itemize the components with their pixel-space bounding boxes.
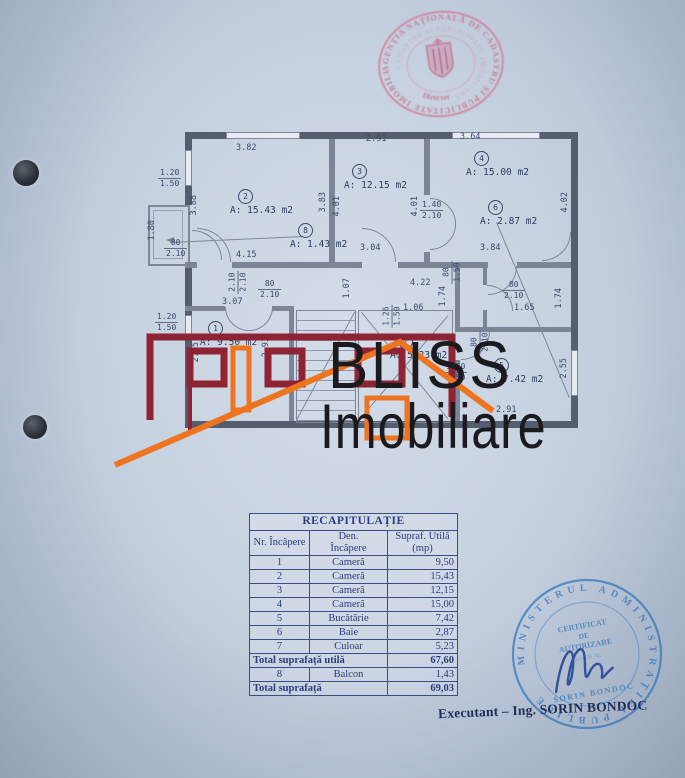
cell-den: Baie — [310, 626, 388, 640]
door-size-mark: 80 1.50 — [442, 260, 462, 283]
wall — [517, 262, 571, 268]
room-label-6: 6 A: 2.87 m2 — [480, 200, 537, 227]
dimension-label: 4.22 — [410, 278, 430, 288]
mark-width: 1.20 — [158, 168, 181, 179]
dimension-label: 4.01 — [410, 196, 420, 216]
total-utila-row: Total suprafață utilă 67,60 — [250, 654, 458, 668]
cell-nr: 7 — [250, 640, 310, 654]
dimension-label: 1.06 — [403, 303, 423, 313]
mark-height: 2.10 — [164, 249, 187, 259]
cell-mp: 1,43 — [388, 668, 458, 682]
mark-width: 1.40 — [420, 200, 443, 211]
wall — [424, 252, 430, 262]
room-label-3: 3 A: 12.15 m2 — [344, 164, 407, 191]
door-size-mark: 2.10 2.10 — [228, 270, 248, 293]
room-number: 4 — [474, 151, 489, 166]
cell-nr: 5 — [250, 612, 310, 626]
cell-den: Cameră — [310, 570, 388, 584]
table-row: 2 Cameră 15,43 — [250, 570, 458, 584]
dimension-label: 3.64 — [460, 132, 480, 142]
total-utila-label: Total suprafață utilă — [250, 654, 388, 668]
dimension-label: 3.82 — [236, 143, 256, 153]
dimension-label: 1.07 — [342, 278, 352, 298]
door-size-mark: 80 2.10 — [502, 280, 525, 300]
stamp-line-de: DE — [578, 630, 590, 641]
total-value: 69,03 — [388, 682, 458, 696]
door-size-mark: 80 2.10 — [164, 238, 187, 258]
mark-height: 1.50 — [452, 260, 462, 283]
cell-nr: 6 — [250, 626, 310, 640]
header-line: Supraf. Utilă — [391, 531, 454, 543]
window — [226, 132, 300, 139]
dimension-label: 3.84 — [480, 243, 500, 253]
leader-line — [170, 236, 303, 243]
cell-mp: 5,23 — [388, 640, 458, 654]
dimension-label: 4.01 — [332, 196, 342, 216]
room-area: A: 1.43 m2 — [290, 239, 347, 250]
wall — [483, 262, 487, 285]
room-area: A: 2.87 m2 — [480, 216, 537, 227]
wall — [424, 139, 430, 195]
wall — [232, 262, 362, 268]
coat-of-arms — [425, 37, 454, 79]
dimension-label: 1.74 — [554, 288, 564, 308]
dimension-label: 3.04 — [360, 243, 380, 253]
punch-hole — [23, 415, 47, 439]
room-label-8: 8 A: 1.43 m2 — [290, 223, 347, 250]
mark-height: 2.10 — [258, 290, 281, 300]
cell-den: Cameră — [310, 556, 388, 570]
dimension-label: 1.80 — [147, 220, 157, 240]
dimension-label: 2.55 — [559, 358, 569, 378]
mark-height: 2.10 — [420, 211, 443, 221]
room-number: 3 — [352, 164, 367, 179]
dimension-label: 3.83 — [318, 192, 328, 212]
mark-width: 80 — [258, 279, 281, 290]
dimension-label: 2.91 — [366, 134, 386, 144]
cell-nr: 3 — [250, 584, 310, 598]
room-label-2: 2 A: 15.43 m2 — [230, 189, 293, 216]
room-area: A: 15.00 m2 — [466, 167, 529, 178]
scanned-document-page: AGENȚIA NAȚIONALĂ DE CADASTRU ȘI PUBLICI… — [0, 0, 685, 778]
dimension-label: 4.02 — [560, 192, 570, 212]
balcon-row: 8 Balcon 1,43 — [250, 668, 458, 682]
mark-width: 80 — [442, 260, 453, 283]
cell-mp: 15,43 — [388, 570, 458, 584]
cell-mp: 12,15 — [388, 584, 458, 598]
cell-den: Culoar — [310, 640, 388, 654]
mark-height: 2.10 — [502, 291, 525, 301]
dimension-label: 1.74 — [438, 286, 448, 306]
room-label-4: 4 A: 15.00 m2 — [466, 151, 529, 178]
mark-width: 80 — [502, 280, 525, 291]
header-line: Den. — [313, 531, 384, 543]
mark-width: 2.10 — [228, 270, 239, 293]
door-size-mark: 1.20 1.50 — [158, 168, 181, 188]
col-header-nr: Nr. Încăpere — [250, 531, 310, 556]
mark-width: 1.20 — [155, 312, 178, 323]
table-row: 5 Bucătărie 7,42 — [250, 612, 458, 626]
cell-mp: 2,87 — [388, 626, 458, 640]
cell-nr: 2 — [250, 570, 310, 584]
header-line: Încăpere — [313, 543, 384, 555]
cell-den: Bucătărie — [310, 612, 388, 626]
room-number: 6 — [488, 200, 503, 215]
col-header-supraf: Supraf. Utilă (mp) — [388, 531, 458, 556]
cell-nr: 8 — [250, 668, 310, 682]
cell-mp: 9,50 — [388, 556, 458, 570]
mark-width: 80 — [164, 238, 187, 249]
total-utila-value: 67,60 — [388, 654, 458, 668]
total-label: Total suprafață — [250, 682, 388, 696]
wall — [185, 306, 225, 311]
door-arc — [542, 232, 571, 261]
room-number: 2 — [238, 189, 253, 204]
mark-height: 1.50 — [158, 179, 181, 189]
table-row: 4 Cameră 15,00 — [250, 598, 458, 612]
logo-text-bliss: BLISS — [328, 332, 512, 399]
dimension-label: 3.07 — [222, 297, 242, 307]
table-row: 6 Baie 2,87 — [250, 626, 458, 640]
cell-nr: 4 — [250, 598, 310, 612]
recap-table: RECAPITULAȚIE Nr. Încăpere Den. Încăpere… — [249, 513, 458, 696]
cell-den: Balcon — [310, 668, 388, 682]
table-row: 3 Cameră 12,15 — [250, 584, 458, 598]
door-size-mark: 80 2.10 — [258, 279, 281, 299]
cell-mp: 7,42 — [388, 612, 458, 626]
room-area: A: 12.15 m2 — [344, 180, 407, 191]
window — [571, 350, 578, 396]
room-area: A: 15.43 m2 — [230, 205, 293, 216]
table-row: 7 Culoar 5,23 — [250, 640, 458, 654]
cadastru-agency-stamp: AGENȚIA NAȚIONALĂ DE CADASTRU ȘI PUBLICI… — [356, 8, 526, 120]
door-size-mark: 1.40 2.10 — [420, 200, 443, 220]
header-line: (mp) — [391, 543, 454, 555]
cell-mp: 15,00 — [388, 598, 458, 612]
col-header-den: Den. Încăpere — [310, 531, 388, 556]
cell-nr: 1 — [250, 556, 310, 570]
punch-hole — [13, 160, 39, 186]
mark-height: 2.10 — [238, 270, 248, 293]
dimension-label: 1.65 — [514, 303, 534, 313]
cell-den: Cameră — [310, 598, 388, 612]
total-row: Total suprafață 69,03 — [250, 682, 458, 696]
stamp-line-seria: Seria B Nr. — [573, 652, 602, 664]
window — [185, 150, 192, 186]
door-arc — [430, 224, 456, 250]
table-row: 1 Cameră 9,50 — [250, 556, 458, 570]
dimension-label: 3.88 — [189, 195, 199, 215]
room-number: 8 — [298, 223, 313, 238]
dimension-label: 4.15 — [236, 250, 256, 260]
table-title: RECAPITULAȚIE — [250, 514, 458, 531]
cell-den: Cameră — [310, 584, 388, 598]
logo-text-imobiliare: Imobiliare — [320, 396, 546, 459]
